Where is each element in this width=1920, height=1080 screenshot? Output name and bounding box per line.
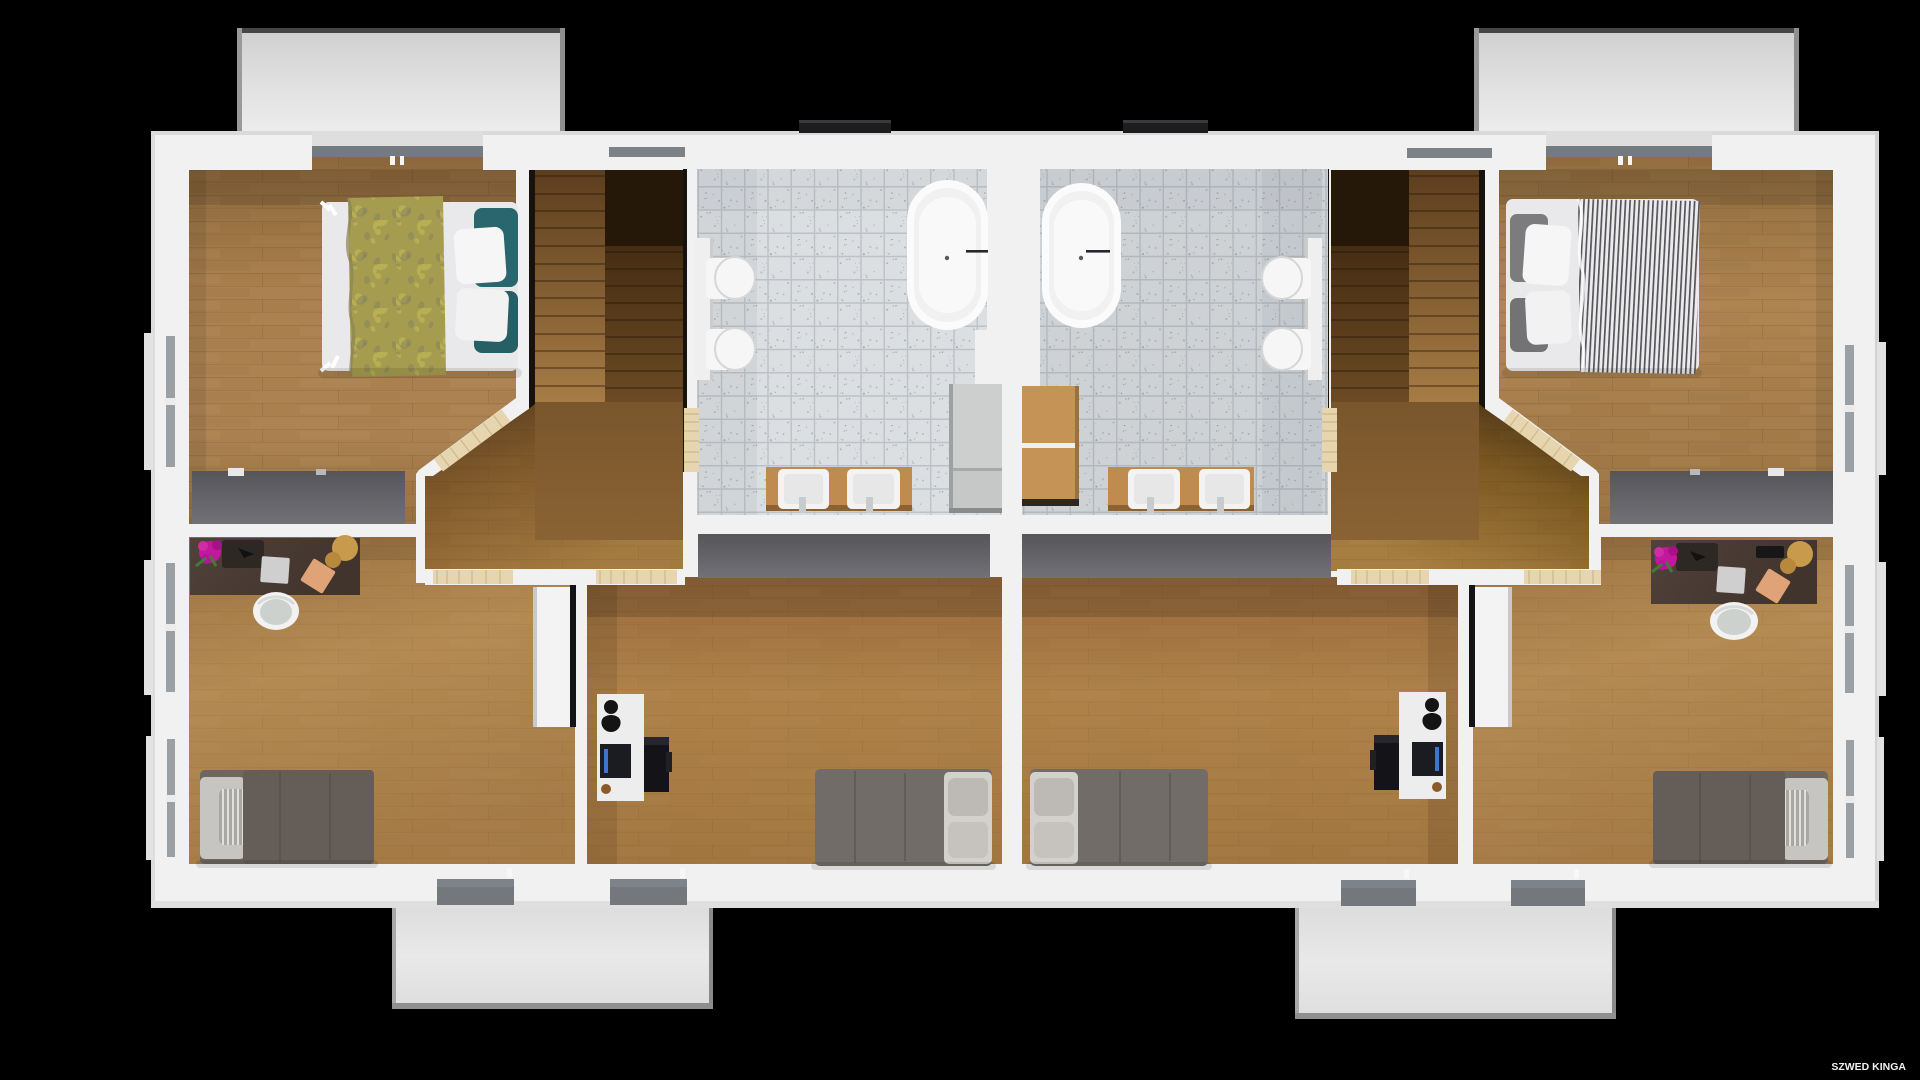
svg-text:SZWED KINGA: SZWED KINGA [1831,1061,1906,1073]
